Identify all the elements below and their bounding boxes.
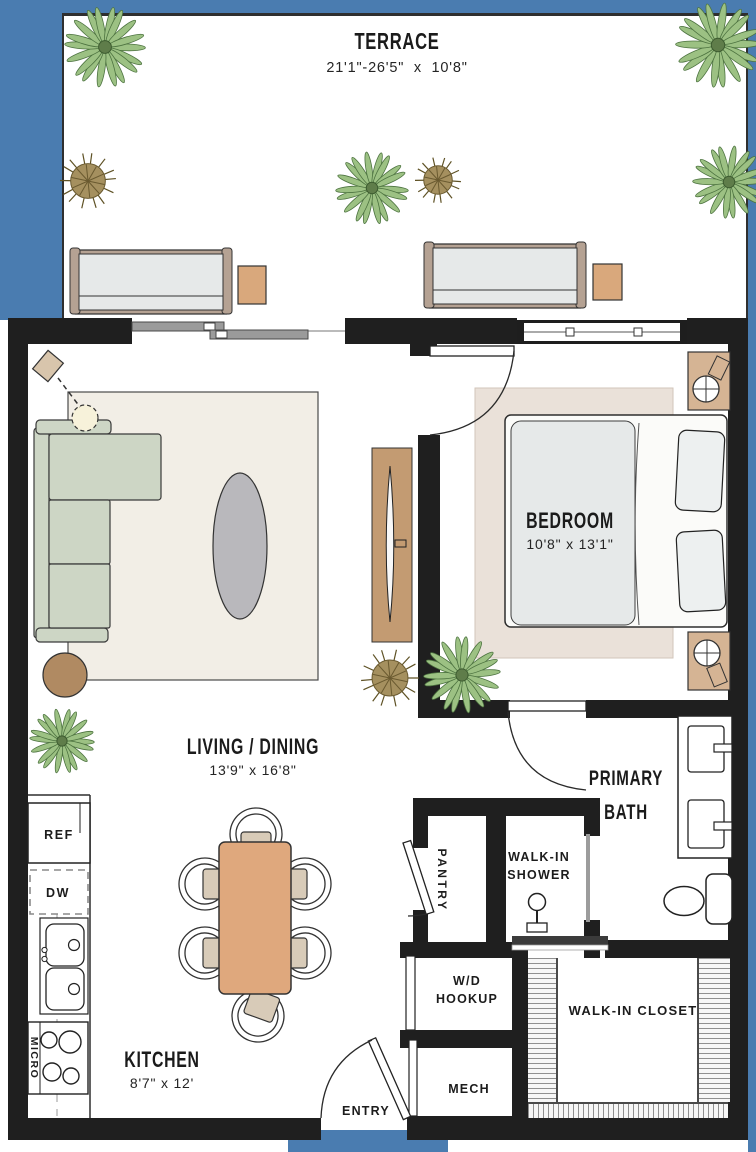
kitchen-sink [40,918,88,1014]
wall-bedroom-bottom-right [586,700,728,718]
sectional-sofa [34,420,161,642]
living-dining-dims: 13'9" x 16'8" [133,762,373,778]
toilet [664,874,732,924]
primary-bath-name: PRIMARY BATH [583,762,669,829]
micro-label: MICRO [28,1037,40,1080]
dining-table [179,808,331,1049]
wall-bedroom-bottom-left [418,700,510,718]
wall-under-pantry-shower [413,942,515,958]
wall-closet-top [605,940,728,958]
terrace-sliding-door [132,322,345,339]
bedroom-door [430,346,514,435]
floor-lamp [72,405,98,431]
wall-shower-right-bottom [584,920,600,958]
wall-top-a [8,318,132,344]
wall-light-fixture [33,350,80,407]
nightstand-bottom [688,632,730,690]
wd-door [406,956,415,1030]
kitchen-label: KITCHEN [62,1043,262,1076]
bath-vanity [678,716,732,858]
wall-wd-stub [400,942,414,958]
wall-wd-mech-divider [400,1030,512,1048]
primary-bath-label: PRIMARY BATH [566,762,686,829]
bedroom-dims: 10'8" x 13'1" [470,536,670,552]
exterior-band-top [0,0,756,13]
living-dining-name: LIVING / DINING [167,730,340,763]
shower-head [527,894,547,933]
wall-top-b [345,318,517,344]
wall-bottom-left [8,1118,321,1140]
nightstand-top [688,352,730,410]
wall-top-notch [410,344,437,356]
mech-label: MECH [424,1080,514,1098]
entry-label: ENTRY [316,1102,416,1120]
coffee-table [213,473,267,619]
wall-pantry-left-bottom [413,910,428,944]
exterior-band-right [748,13,756,1152]
walk-in-shower-label: WALK-IN SHOWER [484,848,594,884]
wall-bottom-right [407,1116,748,1140]
terrace-boundary [62,13,748,318]
olive-plant-icon [361,650,419,707]
wall-pantry-left-top [413,816,428,848]
dw-label: DW [28,884,88,902]
living-dining-label: LIVING / DINING [133,730,373,763]
kitchen-dims: 8'7" x 12' [62,1075,262,1091]
side-table-round [43,653,87,697]
palm-plant-icon [30,709,95,774]
tv-console [372,448,412,642]
terrace-label: TERRACE [247,24,547,59]
living-rug [68,392,318,680]
terrace-name: TERRACE [289,24,505,59]
wall-bedroom-living [418,435,440,702]
closet-rod-right [697,958,730,1102]
closet-rod-bottom [528,1102,728,1118]
bedroom-label: BEDROOM [470,504,670,537]
wall-right [728,318,748,1118]
pantry-label: PANTRY [435,849,449,912]
ref-label: REF [29,826,89,844]
closet-rod-left [528,958,558,1102]
wall-closet-wd-divider [512,942,528,1118]
wall-left [8,318,28,1140]
terrace-dims: 21'1"-26'5" x 10'8" [247,60,547,76]
wd-hookup-label: W/D HOOKUP [422,972,512,1008]
walk-in-closet-label: WALK-IN CLOSET [568,1002,698,1021]
floor-plan: TERRACE 21'1"-26'5" x 10'8" BEDROOM 10'8… [0,0,756,1152]
kitchen-name: KITCHEN [90,1043,234,1076]
bedroom-window [517,320,687,344]
exterior-band-left [0,0,62,320]
pantry-door [403,841,434,916]
bedroom-name: BEDROOM [498,504,642,537]
